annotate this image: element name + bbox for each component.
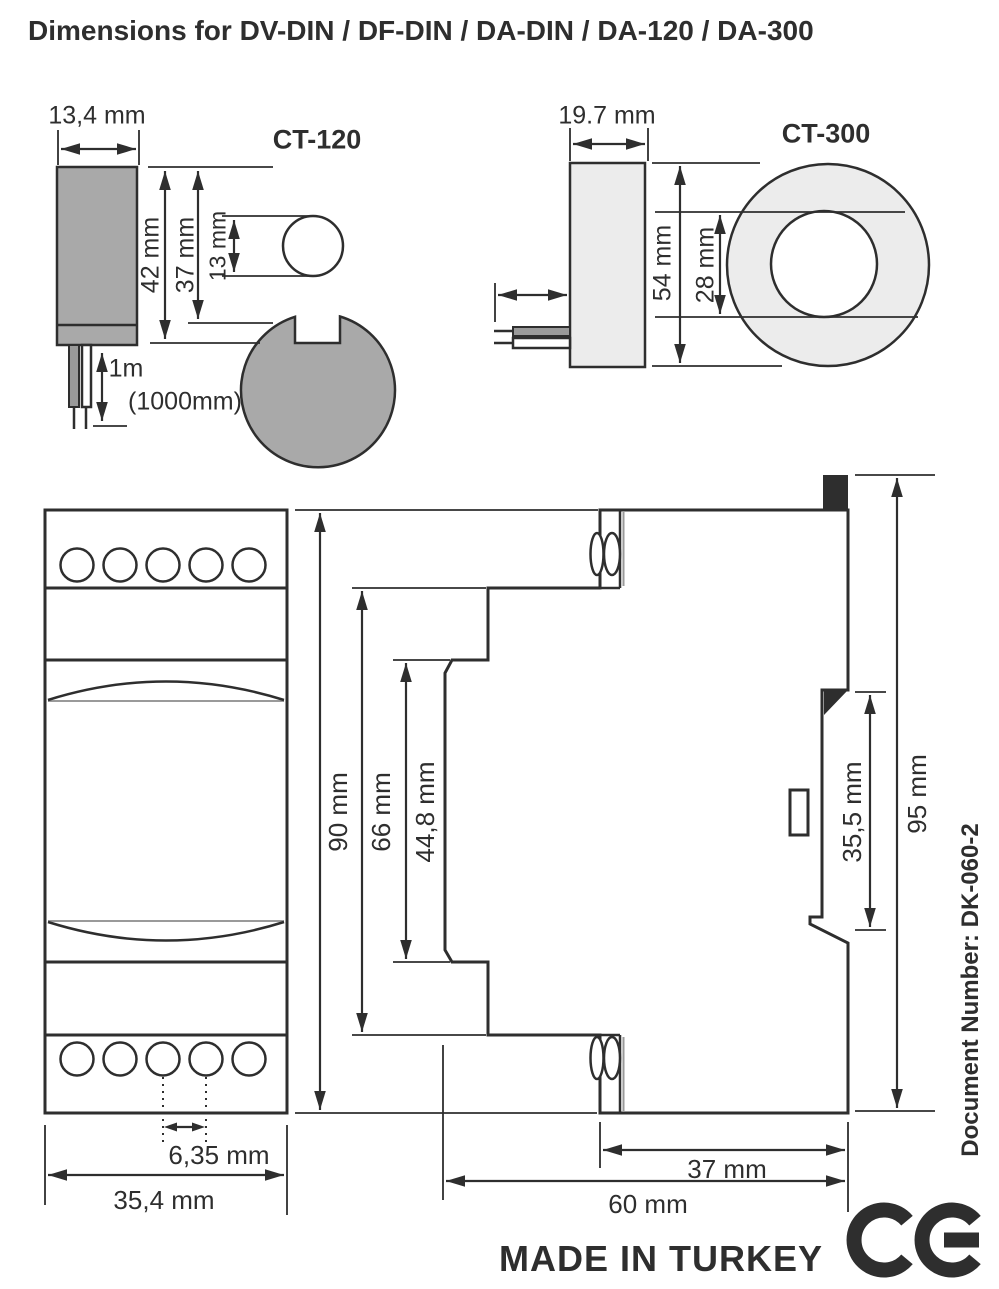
terminal-hole (233, 1043, 266, 1076)
terminal-screw (604, 533, 620, 575)
ct120-wire-white (82, 345, 91, 407)
ct120-hole-label: 13 mm (207, 211, 230, 281)
terminal-hole (147, 1043, 180, 1076)
module-window-height-label: 44,8 mm (412, 761, 438, 862)
ct300-wire-black (513, 327, 570, 336)
terminal-pitch-label: 6,35 mm (168, 1142, 269, 1168)
document-number-label: Document Number: DK-060-2 (959, 823, 983, 1156)
ct300-height-label: 54 mm (651, 225, 676, 301)
ct300-hole-label: 28 mm (694, 227, 719, 303)
overall-depth-label: 60 mm (608, 1191, 687, 1217)
technical-drawing-canvas (0, 0, 999, 1289)
terminal-hole (61, 1043, 94, 1076)
ct120-height-label: 42 mm (139, 217, 164, 293)
terminal-hole (190, 1043, 223, 1076)
module-body-height-label: 66 mm (368, 772, 394, 851)
rail-recess-height-label: 35,5 mm (839, 761, 865, 862)
ct120-wire-black (69, 345, 79, 407)
module-front-outline (45, 510, 287, 1113)
ct300-hole (771, 211, 877, 317)
ct300-body-side (570, 163, 645, 367)
terminal-hole (61, 549, 94, 582)
ct120-cable-length-mm-label: (1000mm) (128, 390, 242, 415)
dimensions-drawing-page: Dimensions for DV-DIN / DF-DIN / DA-DIN … (0, 0, 999, 1289)
module-height-label: 90 mm (325, 772, 351, 851)
ct120-ring (241, 317, 395, 468)
ct300-wire-white (513, 338, 570, 348)
terminal-hole (104, 549, 137, 582)
module-overall-height-label: 95 mm (904, 754, 930, 833)
made-in-label: MADE IN TURKEY (499, 1241, 823, 1277)
ct120-hole (283, 216, 343, 276)
terminal-screw (591, 1037, 604, 1079)
ct120-width-label: 13,4 mm (48, 104, 145, 129)
din-release-clip (823, 475, 848, 510)
terminal-screw (591, 533, 604, 575)
terminal-hole (104, 1043, 137, 1076)
module-width-label: 35,4 mm (113, 1187, 214, 1213)
ct120-drawing (57, 130, 395, 467)
terminal-screw (604, 1037, 620, 1079)
ct120-ring-label: 37 mm (174, 217, 199, 293)
din-hook (824, 690, 848, 715)
terminal-hole (147, 549, 180, 582)
rear-depth-label: 37 mm (687, 1156, 766, 1182)
ce-mark-icon (854, 1210, 979, 1270)
din-rail-symbol (790, 790, 808, 835)
module-side-outline (445, 510, 848, 1113)
ct300-width-label: 19.7 mm (558, 104, 655, 129)
ct120-cable-length-label: 1m (109, 357, 144, 382)
ct120-title: CT-120 (273, 127, 362, 154)
terminal-hole (190, 549, 223, 582)
terminal-hole (233, 549, 266, 582)
ct120-body-side (57, 167, 137, 345)
page-title: Dimensions for DV-DIN / DF-DIN / DA-DIN … (28, 17, 814, 45)
ct300-title: CT-300 (782, 121, 871, 148)
